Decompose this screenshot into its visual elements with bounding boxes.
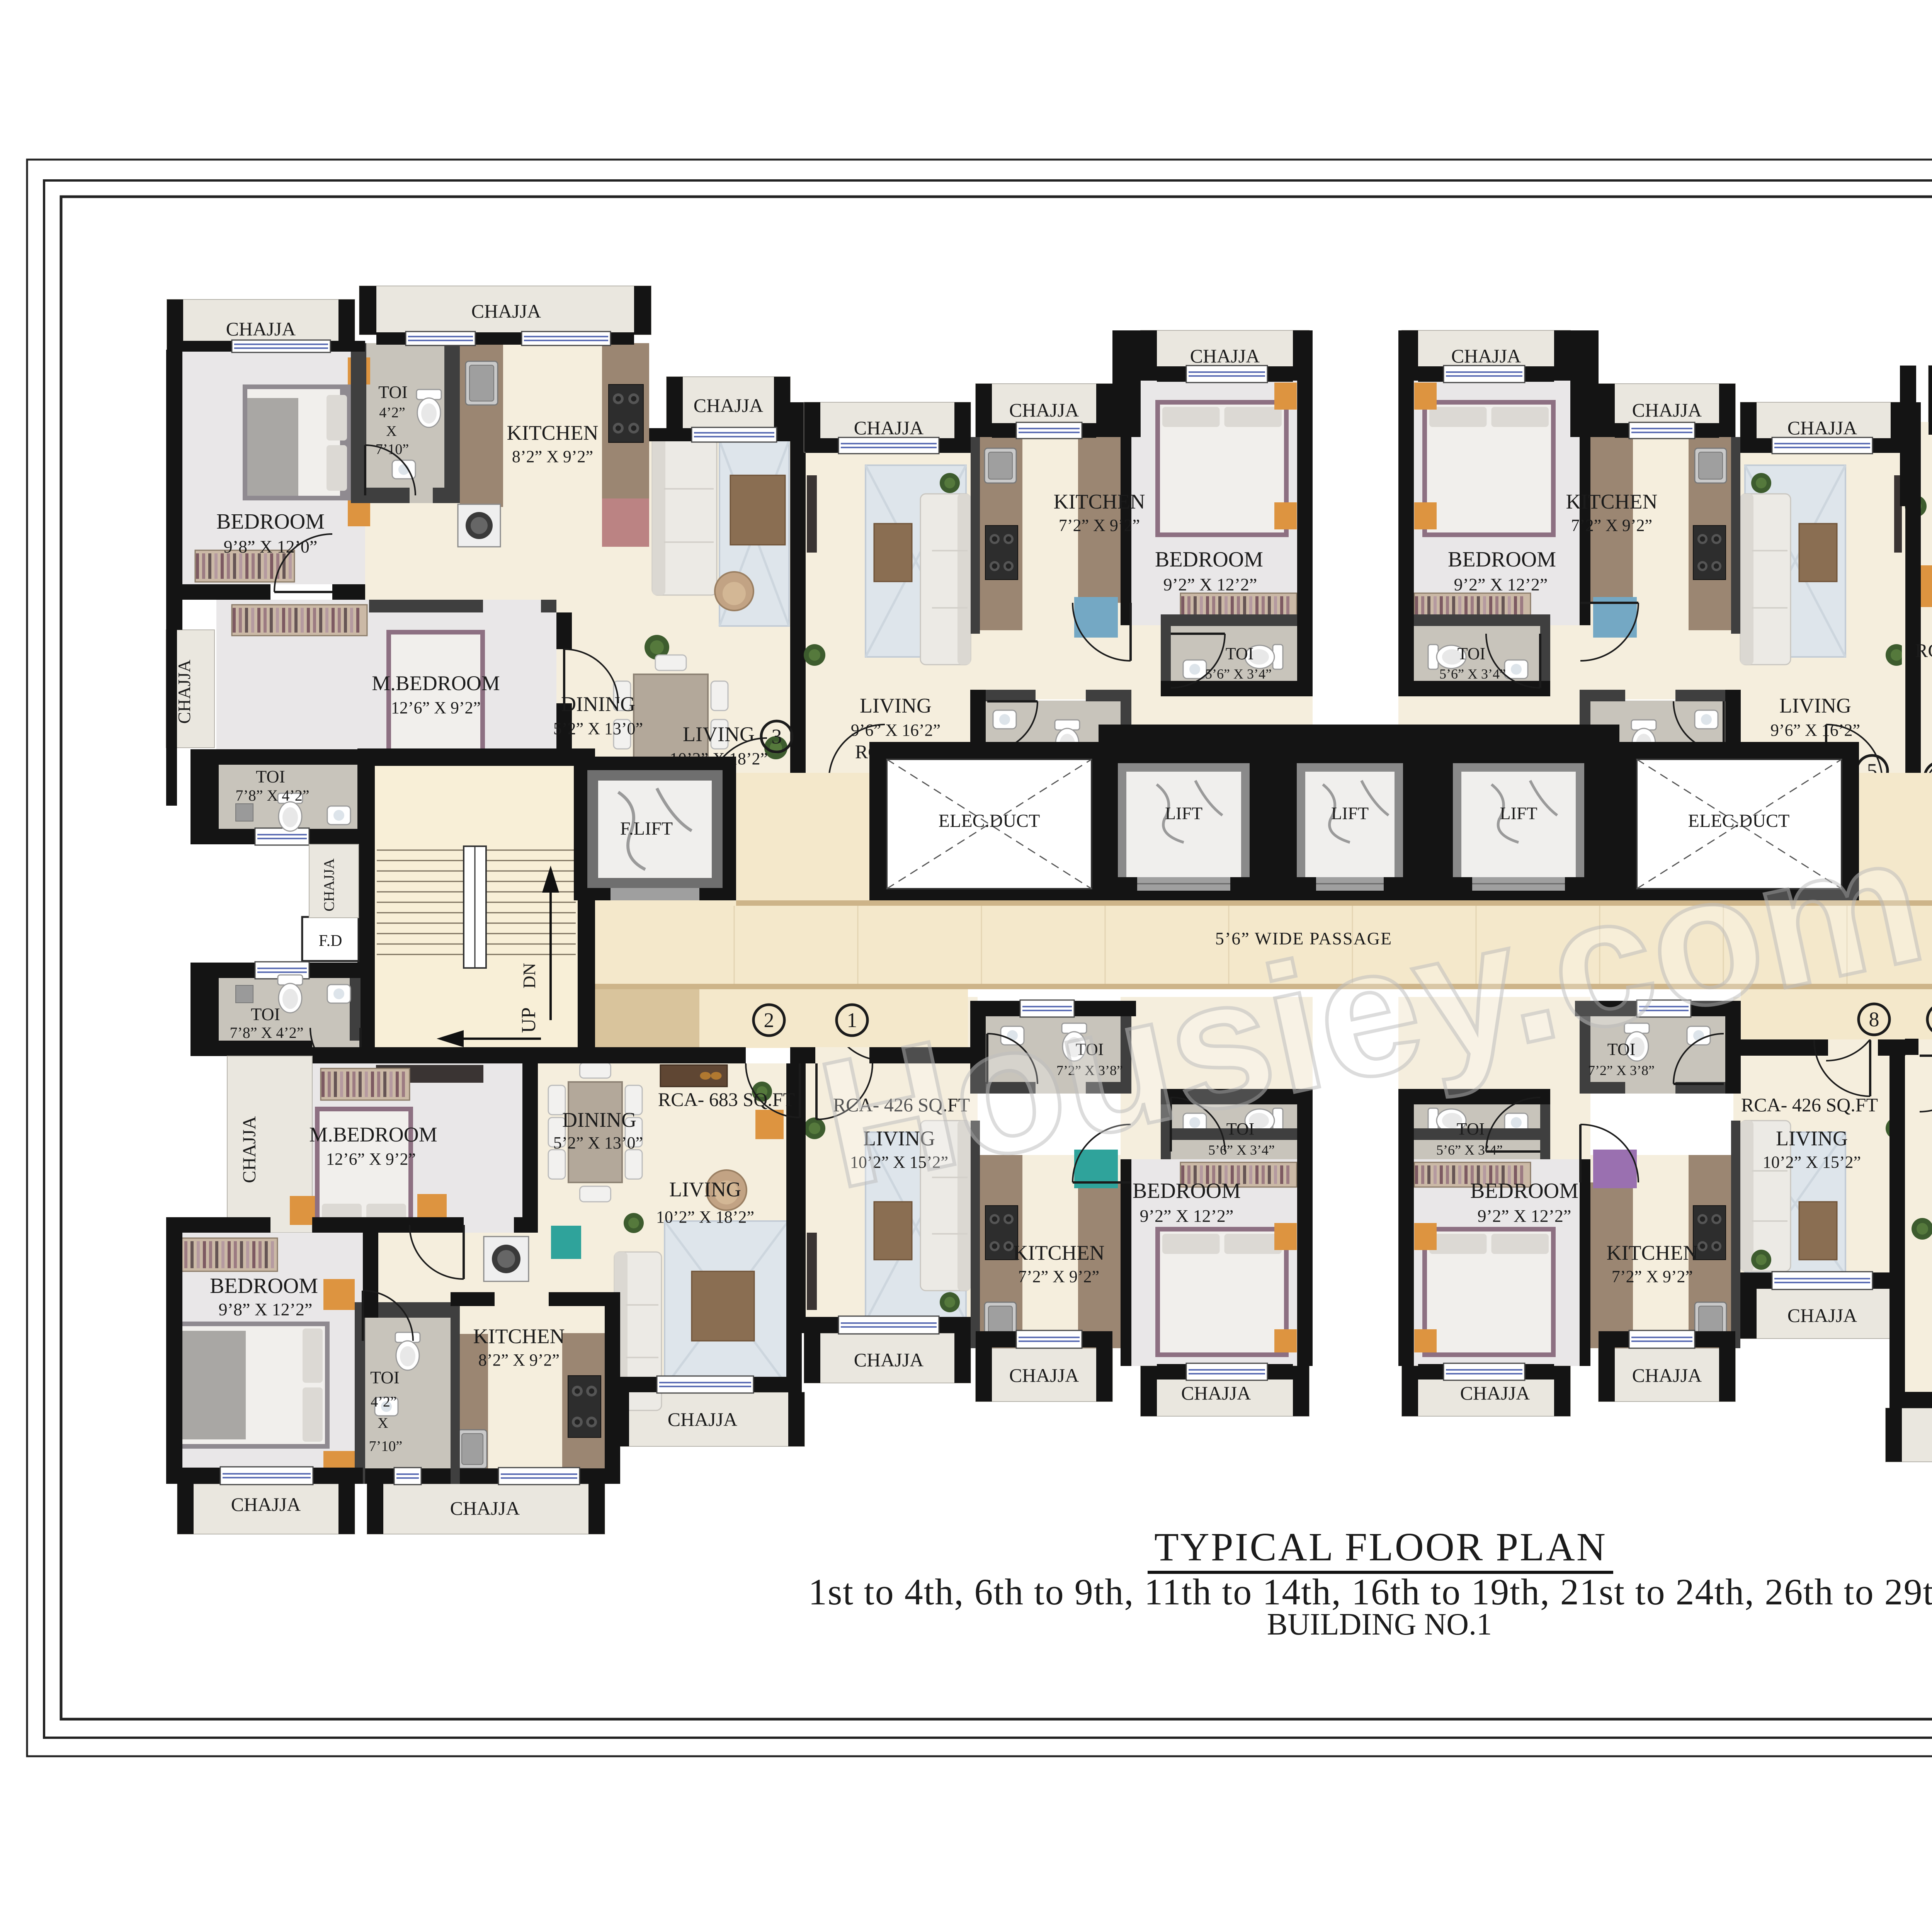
svg-text:TOI: TOI bbox=[378, 382, 408, 402]
svg-text:9’6” X 16’2”: 9’6” X 16’2” bbox=[1770, 721, 1860, 740]
svg-text:9’2” X 12’2”: 9’2” X 12’2” bbox=[1454, 575, 1548, 594]
svg-text:7’2” X 9’2”: 7’2” X 9’2” bbox=[1571, 516, 1652, 535]
svg-text:CHAJJA: CHAJJA bbox=[694, 395, 764, 416]
svg-text:1st to 4th, 6th to 9th, 11th: 1st to 4th, 6th to 9th, 11th to 14th, 16… bbox=[808, 1571, 1932, 1613]
svg-text:UP: UP bbox=[518, 1007, 540, 1033]
svg-text:CHAJJA: CHAJJA bbox=[1787, 1305, 1857, 1326]
svg-text:CHAJJA: CHAJJA bbox=[226, 318, 296, 340]
svg-text:CHAJJA: CHAJJA bbox=[1009, 1364, 1079, 1386]
svg-text:5’6” X 3’4”: 5’6” X 3’4” bbox=[1205, 666, 1272, 682]
svg-text:CHAJJA: CHAJJA bbox=[174, 660, 194, 724]
svg-text:7’2” X 9’2”: 7’2” X 9’2” bbox=[1059, 516, 1140, 535]
svg-text:F.LIFT: F.LIFT bbox=[620, 818, 673, 839]
svg-text:KITCHEN: KITCHEN bbox=[1607, 1241, 1698, 1264]
svg-text:4’2”: 4’2” bbox=[379, 405, 405, 421]
svg-text:TOI: TOI bbox=[256, 767, 285, 786]
svg-text:BEDROOM: BEDROOM bbox=[1470, 1179, 1578, 1203]
svg-text:CHAJJA: CHAJJA bbox=[321, 858, 337, 912]
svg-text:9’2” X 12’2”: 9’2” X 12’2” bbox=[1140, 1206, 1234, 1226]
svg-text:CHAJJA: CHAJJA bbox=[1787, 417, 1857, 439]
svg-text:RCA- 671 SQ.FT: RCA- 671 SQ.FT bbox=[1915, 640, 1932, 661]
svg-text:DINING: DINING bbox=[561, 692, 635, 716]
svg-text:TOI: TOI bbox=[370, 1368, 400, 1387]
svg-text:4’2”: 4’2” bbox=[371, 1394, 397, 1410]
svg-text:KITCHEN: KITCHEN bbox=[507, 421, 599, 444]
svg-text:X: X bbox=[378, 1415, 388, 1431]
svg-text:7’8” X 4’2”: 7’8” X 4’2” bbox=[230, 1024, 303, 1041]
svg-text:CHAJJA: CHAJJA bbox=[1460, 1382, 1530, 1404]
svg-text:TYPICAL FLOOR PLAN: TYPICAL FLOOR PLAN bbox=[1154, 1525, 1607, 1569]
svg-text:TOI: TOI bbox=[251, 1004, 280, 1024]
svg-text:LIFT: LIFT bbox=[1165, 803, 1202, 823]
svg-text:10’2” X 18’2”: 10’2” X 18’2” bbox=[656, 1208, 754, 1226]
svg-text:LIVING: LIVING bbox=[1776, 1127, 1848, 1150]
svg-text:5’6” X 3’4”: 5’6” X 3’4” bbox=[1436, 1142, 1503, 1158]
svg-text:LIFT: LIFT bbox=[1331, 803, 1369, 823]
svg-text:DINING: DINING bbox=[562, 1108, 636, 1131]
svg-text:RCA- 683 SQ.FT: RCA- 683 SQ.FT bbox=[658, 1089, 795, 1110]
svg-text:BUILDING NO.1: BUILDING NO.1 bbox=[1267, 1607, 1492, 1641]
svg-text:7’10”: 7’10” bbox=[369, 1438, 403, 1454]
svg-text:CHAJJA: CHAJJA bbox=[1190, 345, 1260, 367]
svg-text:LIVING: LIVING bbox=[683, 723, 755, 746]
svg-text:KITCHEN: KITCHEN bbox=[1566, 490, 1658, 513]
svg-text:CHAJJA: CHAJJA bbox=[1632, 1364, 1702, 1386]
svg-text:9’8” X 12’0”: 9’8” X 12’0” bbox=[224, 537, 318, 556]
svg-text:KITCHEN: KITCHEN bbox=[473, 1325, 565, 1348]
svg-text:CHAJJA: CHAJJA bbox=[668, 1408, 738, 1430]
svg-text:BEDROOM: BEDROOM bbox=[1133, 1179, 1241, 1203]
svg-text:9’6” X 16’2”: 9’6” X 16’2” bbox=[851, 721, 940, 740]
svg-text:CHAJJA: CHAJJA bbox=[471, 300, 541, 322]
svg-text:10’2” X 15’2”: 10’2” X 15’2” bbox=[1763, 1153, 1861, 1172]
svg-text:LIVING: LIVING bbox=[1779, 694, 1851, 717]
svg-text:5’6” X 3’4”: 5’6” X 3’4” bbox=[1439, 666, 1506, 682]
svg-text:12’6” X 9’2”: 12’6” X 9’2” bbox=[326, 1150, 416, 1169]
svg-text:3: 3 bbox=[772, 725, 782, 748]
svg-text:7’2” X 9’2”: 7’2” X 9’2” bbox=[1612, 1267, 1693, 1286]
svg-text:BEDROOM: BEDROOM bbox=[1155, 548, 1263, 572]
svg-text:CHAJJA: CHAJJA bbox=[1009, 399, 1079, 421]
svg-text:8: 8 bbox=[1869, 1008, 1879, 1031]
svg-text:TOI: TOI bbox=[1226, 644, 1254, 663]
svg-text:CHAJJA: CHAJJA bbox=[239, 1116, 260, 1183]
svg-text:CHAJJA: CHAJJA bbox=[854, 417, 924, 439]
svg-text:DN: DN bbox=[519, 963, 539, 988]
svg-text:BEDROOM: BEDROOM bbox=[210, 1274, 318, 1298]
svg-text:9’2” X 12’2”: 9’2” X 12’2” bbox=[1478, 1206, 1571, 1226]
svg-text:2: 2 bbox=[764, 1009, 774, 1032]
svg-text:CHAJJA: CHAJJA bbox=[450, 1497, 520, 1519]
svg-text:5’2” X 13’0”: 5’2” X 13’0” bbox=[553, 1133, 643, 1152]
svg-text:5’2” X 13’0”: 5’2” X 13’0” bbox=[553, 719, 643, 738]
svg-text:TOI: TOI bbox=[1457, 1119, 1485, 1138]
svg-text:BEDROOM: BEDROOM bbox=[216, 510, 325, 534]
svg-text:CHAJJA: CHAJJA bbox=[1632, 399, 1702, 421]
svg-text:X: X bbox=[386, 423, 396, 439]
svg-text:9’2” X 12’2”: 9’2” X 12’2” bbox=[1163, 575, 1257, 594]
svg-text:CHAJJA: CHAJJA bbox=[231, 1493, 301, 1515]
svg-text:LIVING: LIVING bbox=[860, 694, 932, 717]
svg-text:LIFT: LIFT bbox=[1500, 803, 1537, 823]
svg-text:ELEC.DUCT: ELEC.DUCT bbox=[939, 811, 1040, 831]
svg-text:CHAJJA: CHAJJA bbox=[1181, 1382, 1251, 1404]
svg-text:TOI: TOI bbox=[1458, 644, 1486, 663]
svg-text:BEDROOM: BEDROOM bbox=[1448, 548, 1556, 572]
svg-text:F.D: F.D bbox=[319, 932, 342, 950]
svg-text:9’8” X 12’2”: 9’8” X 12’2” bbox=[219, 1300, 313, 1319]
svg-text:M.BEDROOM: M.BEDROOM bbox=[309, 1123, 437, 1146]
svg-text:CHAJJA: CHAJJA bbox=[1451, 345, 1521, 367]
svg-text:LIVING: LIVING bbox=[669, 1178, 741, 1201]
svg-text:7’2” X 9’2”: 7’2” X 9’2” bbox=[1018, 1267, 1099, 1286]
svg-text:CHAJJA: CHAJJA bbox=[854, 1349, 924, 1371]
svg-text:7’10”: 7’10” bbox=[376, 441, 409, 458]
svg-text:12’6” X 9’2”: 12’6” X 9’2” bbox=[391, 698, 481, 717]
svg-text:7’8” X 4’2”: 7’8” X 4’2” bbox=[235, 787, 309, 804]
svg-text:8’2” X 9’2”: 8’2” X 9’2” bbox=[512, 447, 593, 466]
svg-text:8’2” X 9’2”: 8’2” X 9’2” bbox=[478, 1351, 560, 1369]
svg-text:M.BEDROOM: M.BEDROOM bbox=[372, 672, 500, 695]
svg-text:KITCHEN: KITCHEN bbox=[1054, 490, 1145, 513]
svg-text:KITCHEN: KITCHEN bbox=[1013, 1241, 1105, 1264]
svg-text:RCA- 426 SQ.FT: RCA- 426 SQ.FT bbox=[1741, 1094, 1878, 1116]
